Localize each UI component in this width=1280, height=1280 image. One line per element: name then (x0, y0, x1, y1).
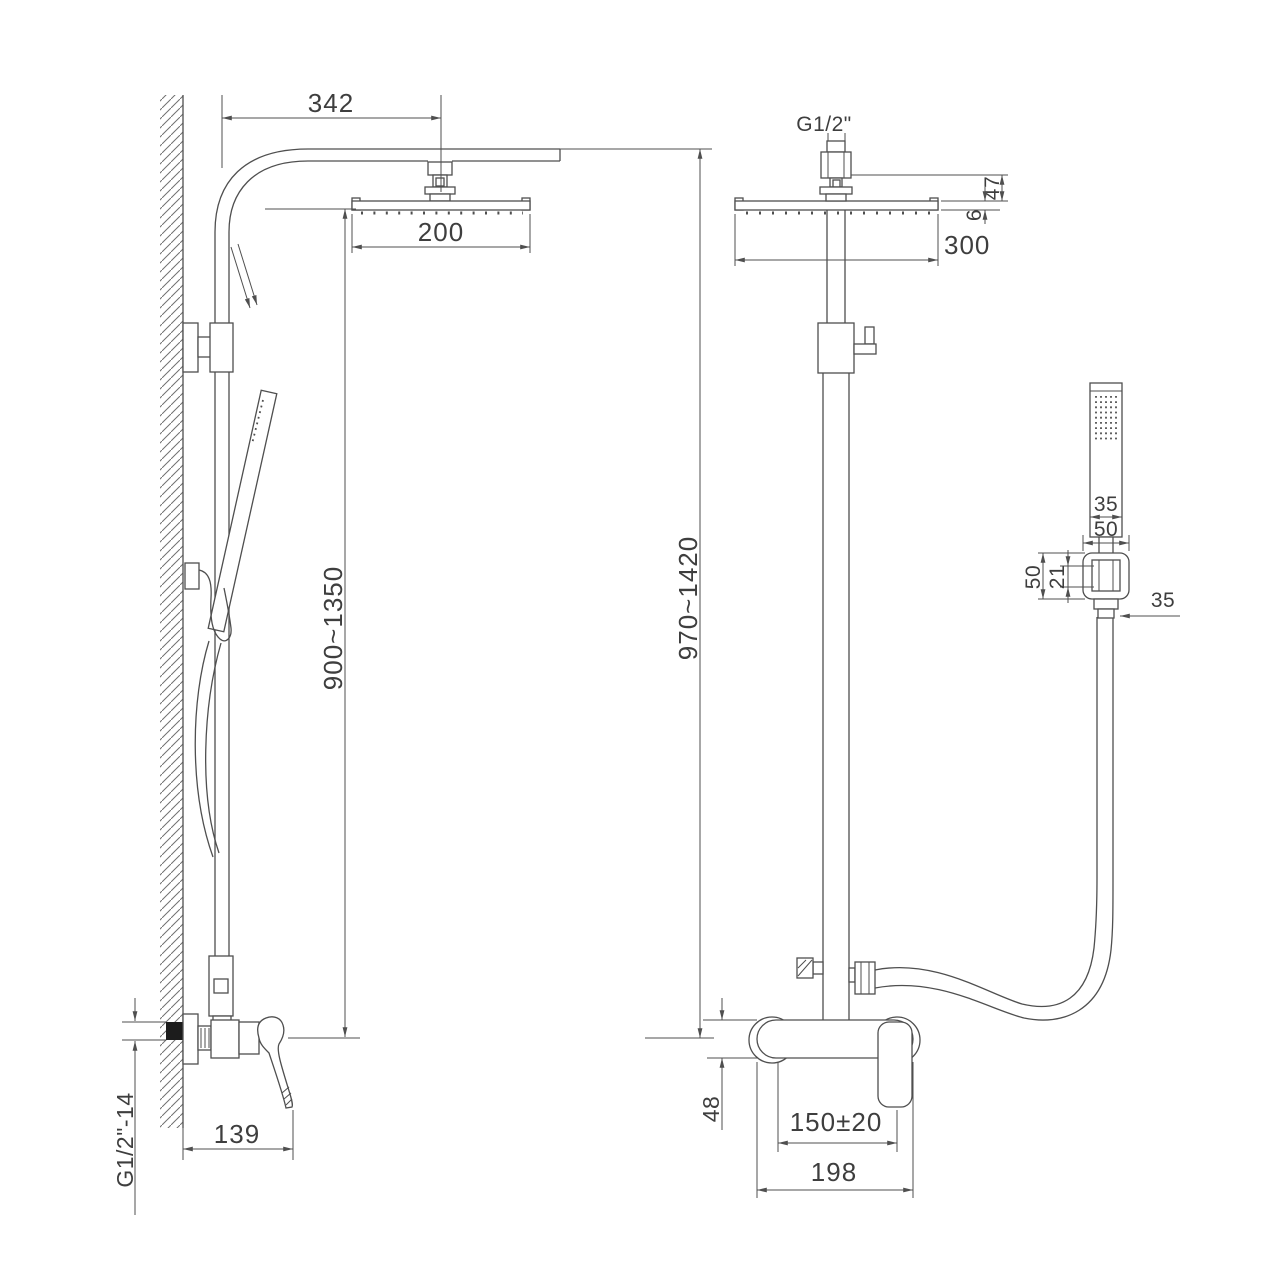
upper-bracket-side (183, 323, 233, 372)
dim-label: 900~1350 (318, 566, 348, 690)
hose-side (195, 641, 213, 857)
arm-curve (215, 149, 308, 232)
mixer-handle-side (258, 1017, 293, 1108)
flex-hose (875, 617, 1097, 1006)
slide-mark (238, 244, 257, 305)
dim-mixer-height: 48 (698, 998, 757, 1130)
dim-label: 35 (1151, 589, 1175, 612)
front-view: G1/2" (645, 113, 1180, 1198)
slider-block-front (818, 323, 876, 373)
mixer-side (166, 1014, 292, 1108)
riser-pipe-upper (827, 210, 845, 323)
dim-label: 47 (981, 176, 1004, 200)
dim-label: 970~1420 (673, 536, 703, 660)
dim-connector-height: 47 (851, 175, 1008, 201)
dim-hand-shower-width: 35 (1090, 493, 1122, 517)
slide-mark (231, 247, 250, 308)
wall-seal (166, 1022, 183, 1040)
shower-arm (308, 149, 560, 161)
diverter-side (209, 956, 233, 1022)
dim-label: 50 (1094, 518, 1118, 541)
hose-side (206, 643, 221, 853)
dim-label: 35 (1094, 493, 1118, 516)
dim-label: 342 (308, 88, 354, 118)
wall-hatch (160, 95, 183, 1128)
dim-label: 200 (418, 217, 464, 247)
diverter-front (797, 958, 875, 994)
dim-label: 48 (698, 1096, 724, 1123)
thread-label: G1/2" (796, 113, 851, 136)
dim-bottom-thread: G1/2"-14 (112, 998, 166, 1215)
holder-nut (1092, 560, 1120, 591)
dim-top-thread: G1/2" (796, 113, 851, 141)
head-connector-front (820, 141, 852, 201)
dim-wall-to-handle: 139 (183, 1110, 293, 1160)
dim-head-width-side: 200 (352, 214, 530, 253)
dim-label: 50 (1022, 565, 1045, 589)
mixer-handle-front (878, 1022, 912, 1107)
dim-height-side: 900~1350 (265, 209, 360, 1038)
dim-label: 150±20 (790, 1107, 883, 1137)
dim-arm-offset: 342 (222, 88, 441, 192)
dim-label: 300 (944, 230, 990, 260)
technical-drawing-canvas: 342 200 900~1350 G1/2"-14 (0, 0, 1280, 1280)
hand-shower-side (208, 390, 277, 631)
flex-hose (875, 617, 1113, 1020)
dim-label: 6 (963, 209, 986, 221)
dim-label: 139 (214, 1119, 260, 1149)
thread-label: G1/2"-14 (112, 1092, 138, 1187)
dim-head-width-front: 300 (735, 214, 990, 266)
head-connector-side (425, 162, 455, 201)
dim-height-front: 970~1420 (645, 149, 714, 1038)
riser-pipe-lower (823, 373, 849, 1020)
shower-system-drawing: 342 200 900~1350 G1/2"-14 (0, 0, 1280, 1280)
dim-label: 21 (1046, 565, 1069, 589)
side-view: 342 200 900~1350 G1/2"-14 (112, 88, 712, 1215)
mixer-front (749, 1017, 920, 1107)
dim-label: 198 (811, 1157, 857, 1187)
